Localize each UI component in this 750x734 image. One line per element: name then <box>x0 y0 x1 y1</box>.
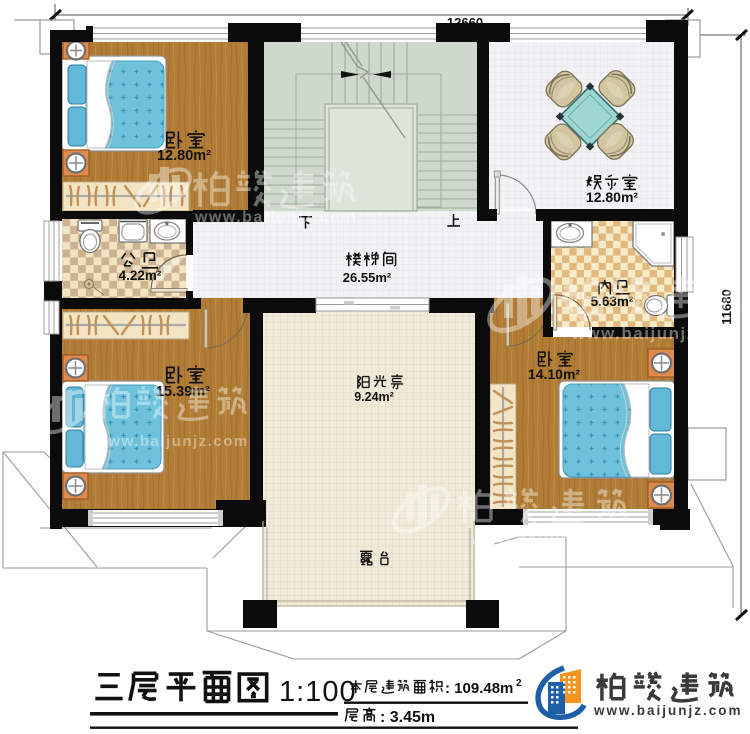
svg-text:: 109.48m: : 109.48m <box>445 680 513 697</box>
svg-text:26.55m²: 26.55m² <box>343 270 392 285</box>
svg-text:: 3.45m: : 3.45m <box>380 709 435 726</box>
svg-text:12.80m²: 12.80m² <box>157 148 211 164</box>
svg-text:www.baijunjz.com: www.baijunjz.com <box>571 324 743 343</box>
svg-text:www.baijunjz.com: www.baijunjz.com <box>94 433 248 450</box>
svg-text:www.baijunjz.com: www.baijunjz.com <box>194 209 357 226</box>
svg-text:2: 2 <box>516 678 522 689</box>
svg-text:4.22m²: 4.22m² <box>119 268 162 283</box>
svg-text:9.24m²: 9.24m² <box>354 390 394 404</box>
svg-text:www.baijunjz.com: www.baijunjz.com <box>470 531 629 548</box>
svg-text:www.baijunjz.com: www.baijunjz.com <box>593 703 743 718</box>
svg-text:12.80m²: 12.80m² <box>586 189 638 205</box>
svg-text:14.10m²: 14.10m² <box>528 366 580 382</box>
